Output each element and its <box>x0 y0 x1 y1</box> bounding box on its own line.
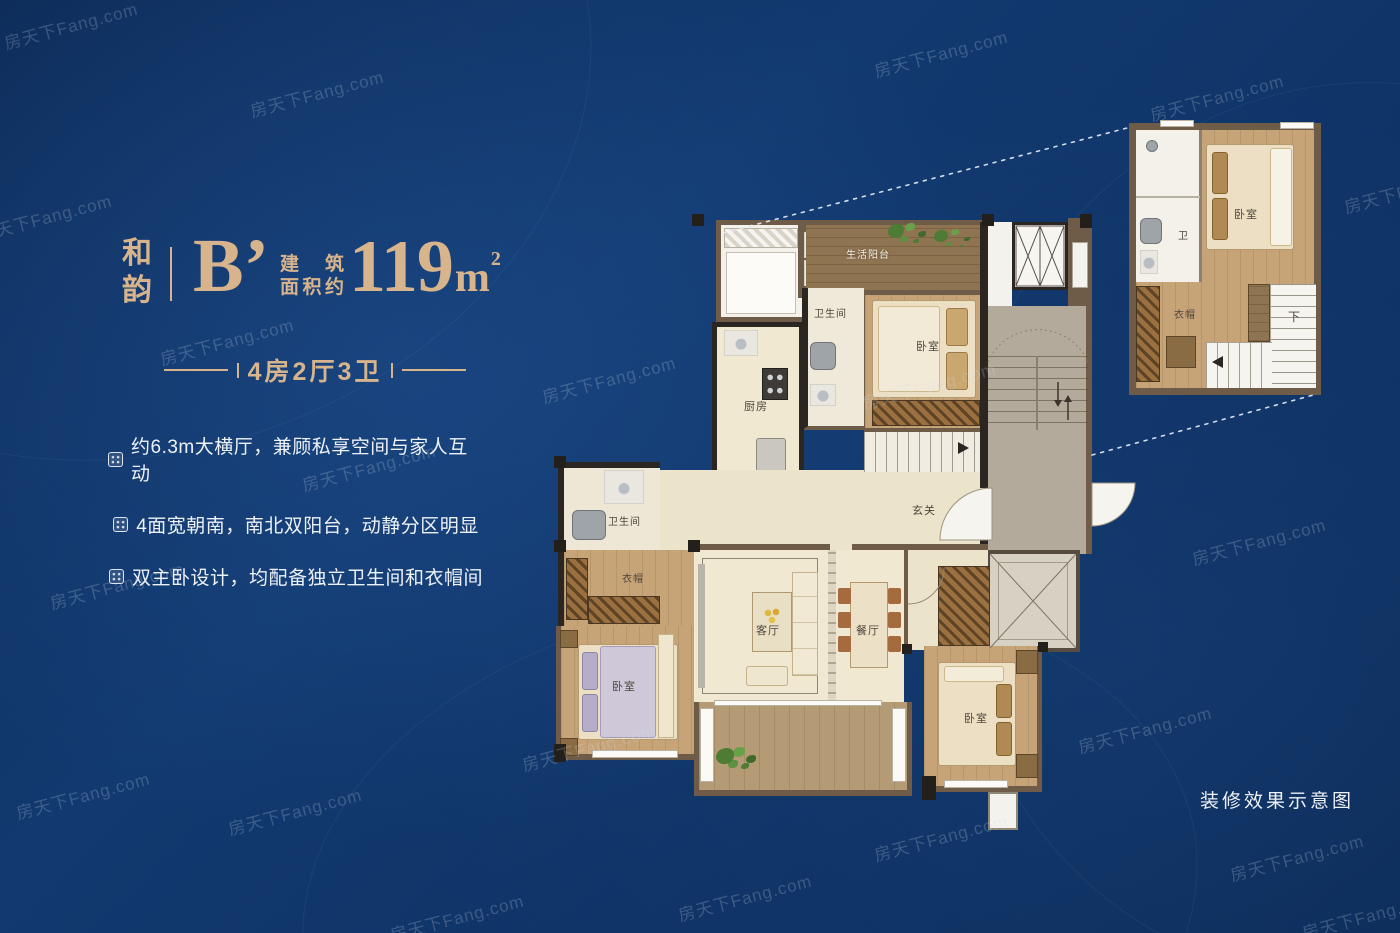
area-superscript: 2 <box>491 248 501 271</box>
detail-stairs <box>1270 284 1316 388</box>
tick-left <box>237 363 239 378</box>
window <box>1160 120 1194 127</box>
bed-bench <box>658 634 674 738</box>
seal-icon <box>109 569 124 584</box>
watermark: 房天下Fang.com <box>1227 827 1366 887</box>
room-label-detail-bath: 卫 <box>1178 227 1189 242</box>
bed-pillow <box>944 666 1004 682</box>
room-label-kitchen: 厨房 <box>744 398 768 414</box>
feature-text: 双主卧设计，均配备独立卫生间和衣帽间 <box>132 563 483 590</box>
watermark: 房天下Fang.com <box>539 349 678 409</box>
ac-platform <box>988 792 1018 830</box>
wall-pier <box>554 456 566 468</box>
wall-pier <box>688 540 700 552</box>
watermark: 房天下Fang.com <box>387 887 526 933</box>
watermark: 房天下Fang.com <box>1341 159 1400 219</box>
room-label-bath-top: 卫生间 <box>814 305 847 320</box>
room-label-stairs-down: 下 <box>1288 308 1301 325</box>
toilet-icon <box>572 510 606 540</box>
chair-icon <box>838 588 851 604</box>
sink-icon <box>1140 250 1158 274</box>
area-value: 119 <box>349 228 453 306</box>
nightstand-icon <box>1016 650 1038 674</box>
unit-type-label: B’ <box>193 226 269 306</box>
toilet-icon <box>1140 218 1162 244</box>
watermark: 房天下Fang.com <box>1075 699 1214 759</box>
common-stairwell <box>984 306 1092 554</box>
chair-icon <box>888 588 901 604</box>
chair-icon <box>888 612 901 628</box>
feature-text: 4面宽朝南，南北双阳台，动静分区明显 <box>136 511 479 538</box>
stove-icon <box>762 368 788 400</box>
area-unit: m <box>455 254 490 302</box>
bed-pillow <box>582 652 598 690</box>
chair-icon <box>888 636 901 652</box>
window <box>1280 122 1314 129</box>
rule-right <box>402 369 466 371</box>
watermark: 房天下Fang.com <box>1299 885 1400 933</box>
nightstand-icon <box>1016 754 1038 778</box>
divider-line <box>170 247 172 301</box>
wall-pier <box>1080 214 1092 228</box>
area-prefix: 建筑 面积约 <box>280 253 344 299</box>
room-label-closet: 衣帽 <box>622 570 644 585</box>
area-prefix-line1: 建筑 <box>280 253 344 276</box>
washer-icon <box>724 228 798 248</box>
stairwell-treads <box>988 356 1088 430</box>
shaft-inner-frame <box>998 562 1068 640</box>
tick-right <box>391 363 393 378</box>
room-label-bedroom-top: 卧室 <box>916 338 940 354</box>
fridge-icon <box>756 438 786 472</box>
room-label-detail-bedroom: 卧室 <box>1234 206 1258 222</box>
core-lobby <box>984 222 1012 310</box>
bed-pillow <box>946 308 968 346</box>
wardrobe <box>1136 286 1160 382</box>
sink-icon <box>810 384 836 406</box>
feature-item: 4面宽朝南，南北双阳台，动静分区明显 <box>108 511 484 538</box>
watermark: 房天下Fang.com <box>1189 511 1328 571</box>
elevator <box>1012 222 1068 290</box>
watermark: 房天下Fang.com <box>247 63 386 123</box>
sink-icon <box>604 470 644 504</box>
tv-cabinet <box>698 564 705 688</box>
wardrobe <box>938 566 990 646</box>
watermark: 房天下Fang.com <box>0 187 114 247</box>
kitchen-sink-icon <box>724 330 758 356</box>
disclaimer-text: 装修效果示意图 <box>1200 786 1354 813</box>
seal-icon <box>108 452 123 467</box>
wall-pier <box>1038 642 1048 652</box>
room-label-detail-closet: 衣帽 <box>1174 306 1196 321</box>
room-label-dining: 餐厅 <box>856 622 880 638</box>
wall-pier <box>692 214 704 226</box>
laundry-tub <box>726 252 796 314</box>
feature-text: 约6.3m大横厅，兼顾私享空间与家人互动 <box>131 432 484 486</box>
chair-icon <box>838 636 851 652</box>
series-name: 和韵 <box>120 235 154 309</box>
area-figure: 119 m 2 <box>349 228 500 306</box>
feature-item: 约6.3m大横厅，兼顾私享空间与家人互动 <box>108 432 484 486</box>
chair-icon <box>838 612 851 628</box>
room-label-bedroom-left: 卧室 <box>612 678 636 694</box>
feature-item: 双主卧设计，均配备独立卫生间和衣帽间 <box>108 563 484 590</box>
wardrobe <box>588 596 660 624</box>
bed-pillow <box>946 352 968 390</box>
wall-segment <box>980 222 988 488</box>
watermark: 房天下Fang.com <box>1147 67 1286 127</box>
layout-summary: 4房2厅3卫 <box>248 352 383 388</box>
armchair <box>746 666 788 686</box>
watermark: 房天下Fang.com <box>871 23 1010 83</box>
room-label-living: 客厅 <box>756 622 780 638</box>
bed-pillow <box>1212 198 1228 240</box>
room-label-bath-left: 卫生间 <box>608 513 641 528</box>
dresser-icon <box>1166 336 1196 368</box>
stair-direction-arrow-icon <box>958 442 969 454</box>
wall-pier <box>982 214 994 226</box>
watermark: 房天下Fang.com <box>675 867 814 927</box>
partition-screen <box>828 550 836 704</box>
window <box>944 780 1008 788</box>
layout-summary-row: 4房2厅3卫 <box>150 352 480 388</box>
window <box>592 750 678 758</box>
wall-pier <box>922 776 936 800</box>
entry-door-arc <box>1092 483 1135 526</box>
sofa <box>792 572 818 676</box>
wall-pier <box>554 744 566 762</box>
bed-pillow <box>1212 152 1228 194</box>
wall-pier <box>554 540 566 552</box>
bed-blanket <box>1270 148 1292 246</box>
rule-left <box>164 369 228 371</box>
shower-divider <box>1136 196 1200 198</box>
room-label-foyer: 玄关 <box>912 502 936 518</box>
window <box>714 700 882 706</box>
wardrobe <box>566 558 588 620</box>
room-label-bedroom-right: 卧室 <box>964 710 988 726</box>
seal-icon <box>113 517 128 532</box>
room-label-service-balcony: 生活阳台 <box>846 246 890 261</box>
stair-rail <box>1248 284 1270 342</box>
hallway <box>656 470 988 552</box>
stair-direction-arrow-icon <box>1212 356 1223 368</box>
nightstand-icon <box>560 630 578 648</box>
projection-dashed-line <box>1092 394 1317 455</box>
stairwell-divider <box>1036 356 1038 430</box>
floorplan-poster: { "info": { "series_name": "和韵", "unit_l… <box>0 0 1400 933</box>
balcony-sill <box>700 708 714 782</box>
wall-pier <box>902 644 912 654</box>
core-window <box>1072 242 1088 288</box>
balcony-sill <box>892 708 906 782</box>
wardrobe <box>872 400 980 426</box>
shower-head-icon <box>1146 140 1158 152</box>
toilet-icon <box>810 342 836 370</box>
bed-pillow <box>996 684 1012 718</box>
bed-pillow <box>996 722 1012 756</box>
watermark: 房天下Fang.com <box>225 781 364 841</box>
area-prefix-line2: 面积约 <box>280 276 344 299</box>
feature-list: 约6.3m大横厅，兼顾私享空间与家人互动 4面宽朝南，南北双阳台，动静分区明显 … <box>108 432 484 590</box>
watermark: 房天下Fang.com <box>13 765 152 825</box>
watermark: 房天下Fang.com <box>1 0 140 54</box>
bed-pillow <box>582 694 598 732</box>
